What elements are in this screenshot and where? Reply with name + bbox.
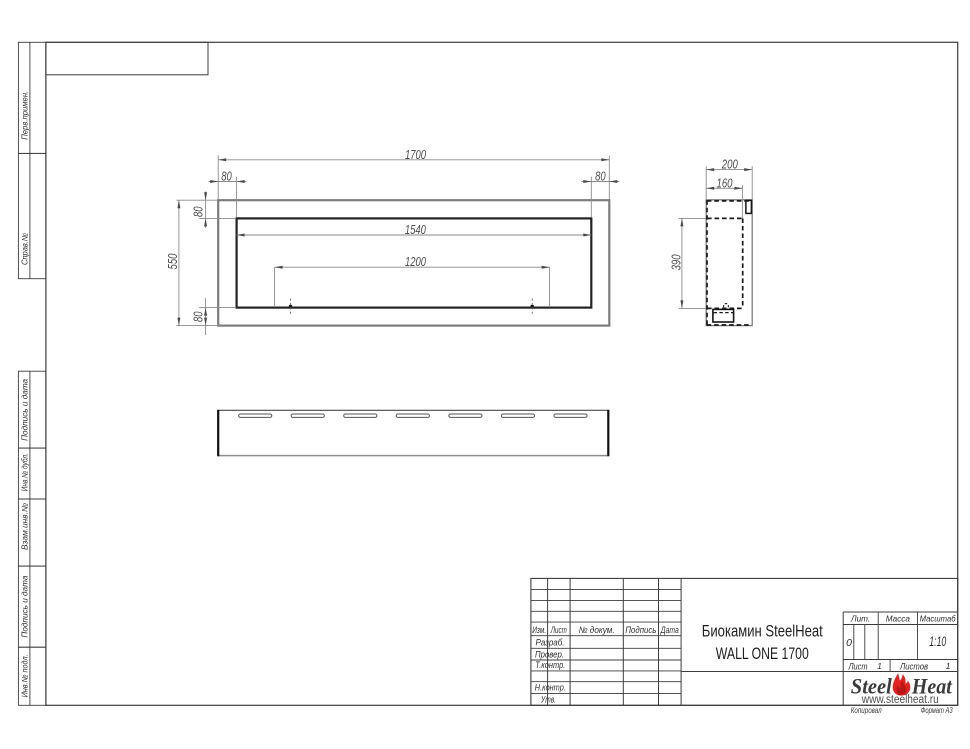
svg-text:80: 80 [191, 311, 206, 322]
svg-text:Дата: Дата [660, 625, 679, 635]
svg-text:80: 80 [595, 168, 606, 183]
svg-text:WALL ONE 1700: WALL ONE 1700 [716, 645, 809, 663]
svg-text:Провер.: Провер. [535, 649, 564, 659]
svg-text:Копировал: Копировал [851, 706, 882, 715]
svg-text:Н.контр.: Н.контр. [535, 683, 566, 693]
svg-text:Справ.№: Справ.№ [21, 233, 30, 265]
svg-text:Инв.№ подл.: Инв.№ подл. [21, 654, 30, 697]
svg-text:Утв.: Утв. [540, 695, 556, 705]
svg-text:www.steelheat.ru: www.steelheat.ru [861, 694, 939, 706]
svg-text:Изм.: Изм. [532, 625, 546, 635]
svg-text:390: 390 [668, 254, 683, 271]
svg-text:№ докум.: № докум. [579, 625, 615, 635]
svg-text:0: 0 [846, 637, 852, 649]
svg-text:80: 80 [221, 168, 232, 183]
svg-text:550: 550 [165, 253, 180, 270]
svg-text:Взам.инв.№: Взам.инв.№ [21, 503, 30, 550]
svg-text:Лист: Лист [848, 661, 868, 671]
svg-text:Масштаб: Масштаб [920, 615, 956, 624]
svg-text:Т.контр.: Т.контр. [535, 660, 565, 670]
svg-text:Формат А3: Формат А3 [921, 706, 953, 715]
svg-text:Инв.№ дубл.: Инв.№ дубл. [21, 453, 30, 491]
svg-text:1540: 1540 [405, 222, 427, 237]
svg-text:160: 160 [717, 175, 734, 190]
svg-text:Масса: Масса [886, 615, 911, 624]
svg-text:Подпись и дата: Подпись и дата [21, 575, 30, 638]
svg-text:1700: 1700 [405, 147, 427, 162]
svg-text:1200: 1200 [405, 254, 427, 269]
svg-text:Подпись и дата: Подпись и дата [21, 378, 30, 441]
svg-text:1:10: 1:10 [929, 634, 946, 649]
svg-text:Биокамин SteelHeat: Биокамин SteelHeat [702, 623, 823, 641]
svg-text:80: 80 [191, 206, 206, 217]
svg-text:Лит.: Лит. [850, 615, 870, 624]
svg-text:Разраб.: Разраб. [536, 638, 565, 648]
svg-text:Лист: Лист [550, 625, 567, 635]
svg-text:Листов: Листов [899, 661, 928, 671]
svg-text:1: 1 [877, 661, 882, 671]
svg-text:200: 200 [721, 157, 738, 172]
svg-text:1: 1 [946, 661, 951, 671]
svg-text:Подпись: Подпись [625, 625, 656, 635]
svg-text:Перв.примен.: Перв.примен. [21, 91, 30, 140]
